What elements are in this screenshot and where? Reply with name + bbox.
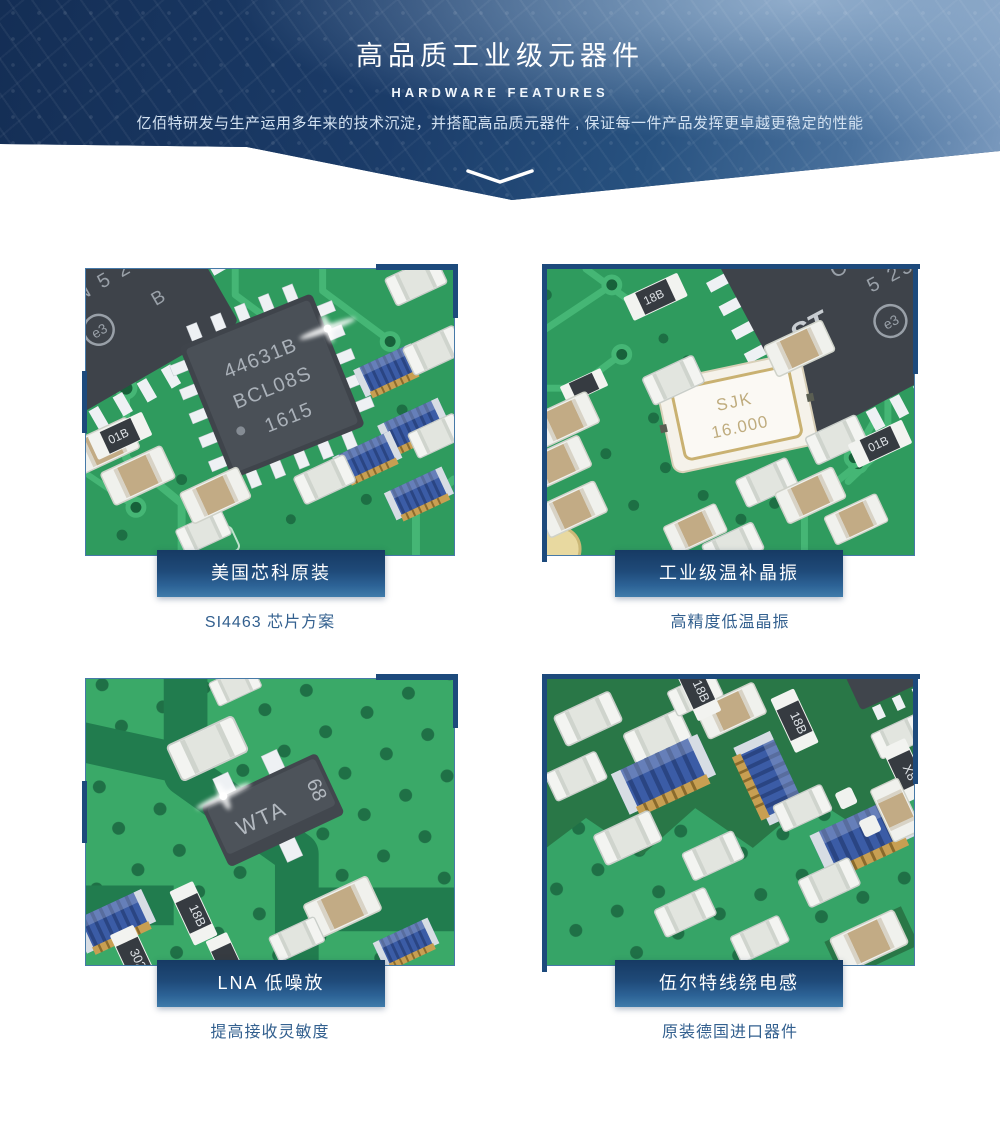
feature-caption: 高精度低温晶振 — [545, 608, 915, 632]
accent-bar — [542, 674, 920, 679]
feature-caption: 提高接收灵敏度 — [85, 1018, 455, 1042]
page-title: 高品质工业级元器件 — [0, 0, 1000, 73]
page-root: 高品质工业级元器件 HARDWARE FEATURES 亿佰特研发与生产运用多年… — [0, 0, 1000, 1142]
feature-badge: 伍尔特线绕电感 — [615, 960, 843, 1007]
accent-bar — [376, 674, 458, 680]
feature-lna-image: WTA 68 18B 302 — [85, 678, 455, 966]
banner-description: 亿佰特研发与生产运用多年来的技术沉淀，并搭配高品质元器件 , 保证每一件产品发挥… — [0, 112, 1000, 133]
pcb-render-inductors: 18B 18B X8 — [546, 679, 914, 965]
accent-bar — [913, 264, 918, 374]
pcb-render-lna: WTA 68 18B 302 — [86, 679, 454, 965]
feature-badge: 工业级温补晶振 — [615, 550, 843, 597]
feature-crystal-image: ST CHN 5 23 e3 B SJK 16.000 18B — [545, 268, 915, 556]
pcb-render-crystal: ST CHN 5 23 e3 B SJK 16.000 18B — [546, 269, 914, 555]
accent-bar — [453, 674, 458, 728]
page-subtitle: HARDWARE FEATURES — [0, 85, 1000, 100]
accent-bar — [542, 264, 920, 269]
accent-bar — [542, 674, 547, 972]
feature-badge: 美国芯科原装 — [157, 550, 385, 597]
accent-bar — [82, 371, 87, 433]
feature-badge: LNA 低噪放 — [157, 960, 385, 1007]
chevron-down-icon — [464, 168, 536, 186]
pcb-render-chip: 1Q9U N 5 23 e3 B — [86, 269, 454, 555]
feature-caption: SI4463 芯片方案 — [85, 608, 455, 632]
accent-bar — [376, 264, 458, 270]
accent-bar — [542, 264, 547, 562]
accent-bar — [453, 264, 458, 318]
feature-inductor-image: 18B 18B X8 — [545, 678, 915, 966]
feature-chip-image: 1Q9U N 5 23 e3 B — [85, 268, 455, 556]
feature-caption: 原装德国进口器件 — [545, 1018, 915, 1042]
accent-bar — [82, 781, 87, 843]
accent-bar — [913, 674, 918, 784]
